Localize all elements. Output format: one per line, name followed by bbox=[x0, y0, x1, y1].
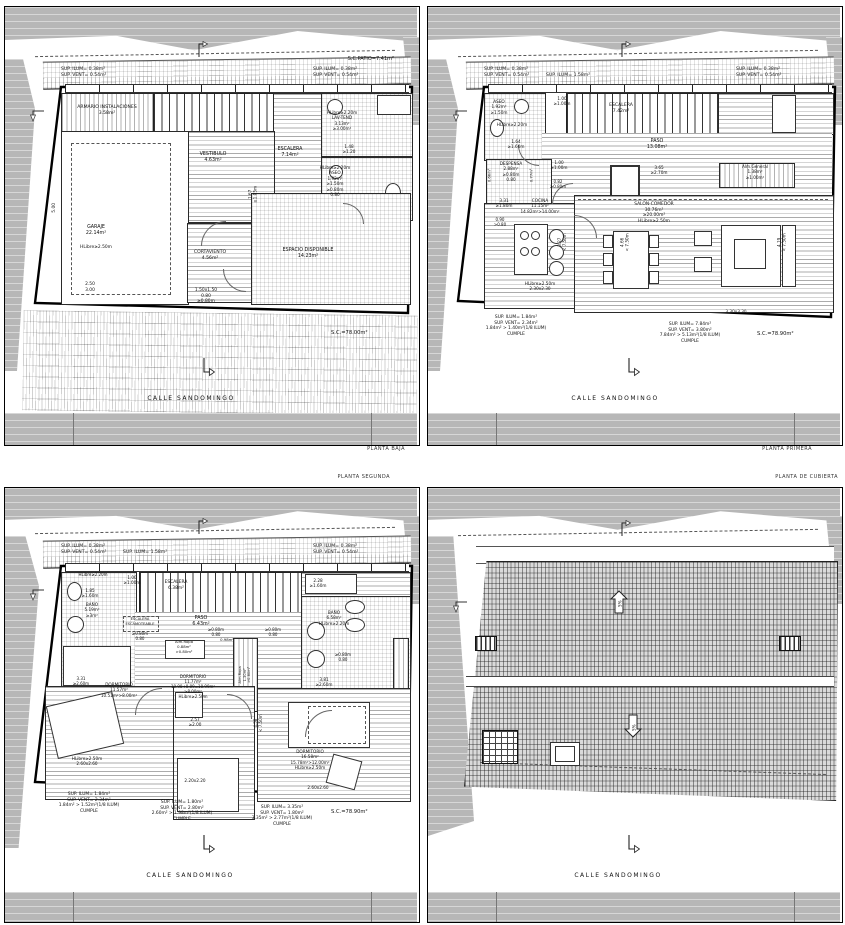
laundry-counter bbox=[377, 95, 411, 115]
roof-vent-right bbox=[779, 636, 801, 651]
plan-planta-primera: SUP. ILUM= 0.38m² SUP. VENT= 0.54m²SUP. … bbox=[427, 6, 843, 446]
street-arrow-icon bbox=[199, 834, 215, 854]
curb-divider bbox=[73, 892, 74, 922]
dining-chair bbox=[603, 253, 613, 266]
bath-sink bbox=[307, 650, 325, 668]
street-arrow-icon bbox=[624, 834, 640, 854]
slope-up-arrow-icon bbox=[610, 590, 628, 614]
washer-circle bbox=[327, 99, 343, 115]
room-alm-general bbox=[719, 163, 795, 188]
armchair bbox=[694, 231, 712, 246]
closet bbox=[175, 692, 203, 718]
plan-title-primera: PLANTA PRIMERA bbox=[762, 446, 812, 452]
plan-title-cubierta: PLANTA DE CUBIERTA bbox=[775, 474, 838, 480]
plan-planta-baja: S.C.PATIO=7.41m²SUP. ILUM= 0.38m² SUP. V… bbox=[4, 6, 420, 446]
wardrobe bbox=[772, 95, 796, 133]
bath-sink bbox=[307, 622, 325, 640]
curb-divider bbox=[794, 413, 795, 445]
roof-vent-left bbox=[475, 636, 497, 651]
roof-ridge bbox=[466, 676, 834, 687]
alm-ropa-box bbox=[165, 640, 205, 659]
plan-planta-cubierta: 5%5%CALLE SANDOMINGO bbox=[427, 487, 843, 923]
slope-down-arrow-icon bbox=[624, 714, 642, 738]
bed bbox=[177, 758, 239, 812]
dining-chair bbox=[603, 271, 613, 284]
kitchen-sink bbox=[549, 229, 564, 244]
burner bbox=[531, 247, 540, 256]
facade-window-row bbox=[488, 84, 832, 93]
dining-table bbox=[613, 231, 649, 289]
room-paso bbox=[135, 612, 301, 688]
plan-planta-segunda: SUP. ILUM= 0.38m² SUP. VENT= 0.54m²SUP. … bbox=[4, 487, 420, 923]
bath-toilet bbox=[67, 582, 82, 601]
curb-divider bbox=[496, 892, 497, 922]
sofa bbox=[782, 225, 796, 287]
burner bbox=[531, 231, 540, 240]
sidewalk-band bbox=[5, 413, 417, 445]
sidewalk-band bbox=[428, 892, 840, 922]
plan-title-baja: PLANTA BAJA bbox=[367, 446, 405, 452]
curb-divider bbox=[73, 413, 74, 445]
closet bbox=[305, 574, 357, 594]
bath-sink bbox=[67, 616, 84, 633]
stairs-run bbox=[153, 93, 291, 133]
aseo-toilet bbox=[490, 119, 504, 137]
armchair bbox=[694, 257, 712, 272]
room-armario-instalaciones bbox=[61, 93, 155, 133]
street-name: CALLE SANDOMINGO bbox=[574, 872, 661, 880]
dining-chair bbox=[649, 253, 659, 266]
dining-chair bbox=[603, 235, 613, 248]
burner bbox=[520, 247, 529, 256]
curb-divider bbox=[371, 892, 372, 922]
sidewalk-band bbox=[5, 892, 417, 922]
hook-arrow-left-icon bbox=[452, 600, 468, 613]
curb-divider bbox=[371, 413, 372, 445]
dining-chair bbox=[649, 235, 659, 248]
skylight-grid bbox=[482, 730, 518, 764]
parking-space bbox=[71, 143, 171, 295]
street-arrow-icon bbox=[624, 357, 640, 377]
tv-unit bbox=[734, 239, 766, 269]
bath-toilet bbox=[345, 618, 365, 632]
boundary-dashed-line bbox=[458, 529, 818, 536]
kitchen-sink bbox=[549, 261, 564, 276]
curb-divider bbox=[496, 413, 497, 445]
bathtub bbox=[63, 646, 131, 686]
kitchen-sink bbox=[549, 245, 564, 260]
curb-divider bbox=[794, 892, 795, 922]
aseo-sink bbox=[514, 99, 529, 114]
burner bbox=[520, 231, 529, 240]
esc-escamoteable-box bbox=[123, 616, 159, 632]
facade-window-row bbox=[65, 563, 409, 572]
street-arrow-icon bbox=[199, 357, 215, 377]
bath-toilet bbox=[345, 600, 365, 614]
boundary-arrow-icon bbox=[618, 520, 631, 537]
facade-window-row bbox=[65, 84, 409, 93]
neighbor-mass-top bbox=[428, 488, 840, 546]
roof-window-inner bbox=[555, 746, 575, 762]
stairs-run bbox=[566, 93, 720, 135]
plan-title-segunda: PLANTA SEGUNDA bbox=[337, 474, 390, 480]
aseo-sink bbox=[329, 165, 343, 179]
salon-dashed-line bbox=[578, 199, 828, 200]
dining-chair bbox=[649, 271, 659, 284]
shaft-box bbox=[610, 165, 640, 197]
drawing-sheet: S.C.PATIO=7.41m²SUP. ILUM= 0.38m² SUP. V… bbox=[0, 0, 845, 925]
stairs-run bbox=[139, 572, 303, 614]
room-espacio-disponible bbox=[251, 193, 411, 305]
sidewalk-band bbox=[428, 413, 840, 445]
